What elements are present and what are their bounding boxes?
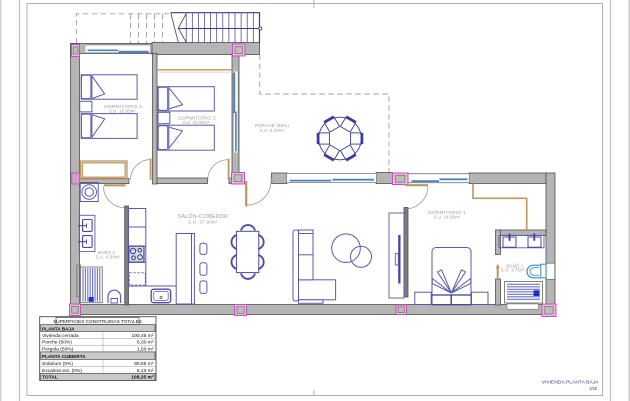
svg-text:1,50 m²: 1,50 m² [137, 346, 154, 352]
svg-text:S.U. 6.30m²: S.U. 6.30m² [260, 128, 285, 133]
svg-text:6,10 m²: 6,10 m² [137, 368, 154, 374]
svg-text:1/50: 1/50 [589, 386, 598, 391]
svg-text:100,45 m²: 100,45 m² [131, 333, 153, 339]
svg-text:108,25 m²: 108,25 m² [131, 375, 154, 381]
svg-text:S.U. 10.85m²: S.U. 10.85m² [182, 120, 209, 125]
svg-text:Porche (50%): Porche (50%) [42, 340, 72, 346]
svg-text:PLANTA CUBIERTA: PLANTA CUBIERTA [42, 354, 86, 359]
svg-text:S.U. 6.30m²: S.U. 6.30m² [96, 254, 121, 259]
svg-text:Pergola (50%): Pergola (50%) [42, 346, 74, 352]
svg-text:VIVIENDA PLANTA BAJA: VIVIENDA PLANTA BAJA [542, 380, 600, 386]
svg-text:SUPERFICIES CONSTRUIDAS TOTALE: SUPERFICIES CONSTRUIDAS TOTALES [53, 319, 142, 324]
svg-text:90,55 m²: 90,55 m² [134, 361, 154, 367]
svg-text:PLANTA BAJA: PLANTA BAJA [42, 327, 75, 332]
svg-text:TOTAL: TOTAL [42, 375, 58, 381]
svg-text:S.U. 3.75m²: S.U. 3.75m² [501, 267, 526, 272]
svg-text:S.U. 37.90m²: S.U. 37.90m² [188, 220, 218, 225]
svg-text:Solarium (0%): Solarium (0%) [42, 361, 73, 367]
svg-text:S.U. 10.85m²: S.U. 10.85m² [109, 108, 136, 113]
svg-text:Vivienda cerrada: Vivienda cerrada [42, 333, 79, 339]
svg-text:6,30 m²: 6,30 m² [137, 340, 154, 346]
svg-text:Escalera ext. (0%): Escalera ext. (0%) [42, 368, 82, 374]
svg-text:S.U. 14.95m²: S.U. 14.95m² [433, 215, 460, 220]
